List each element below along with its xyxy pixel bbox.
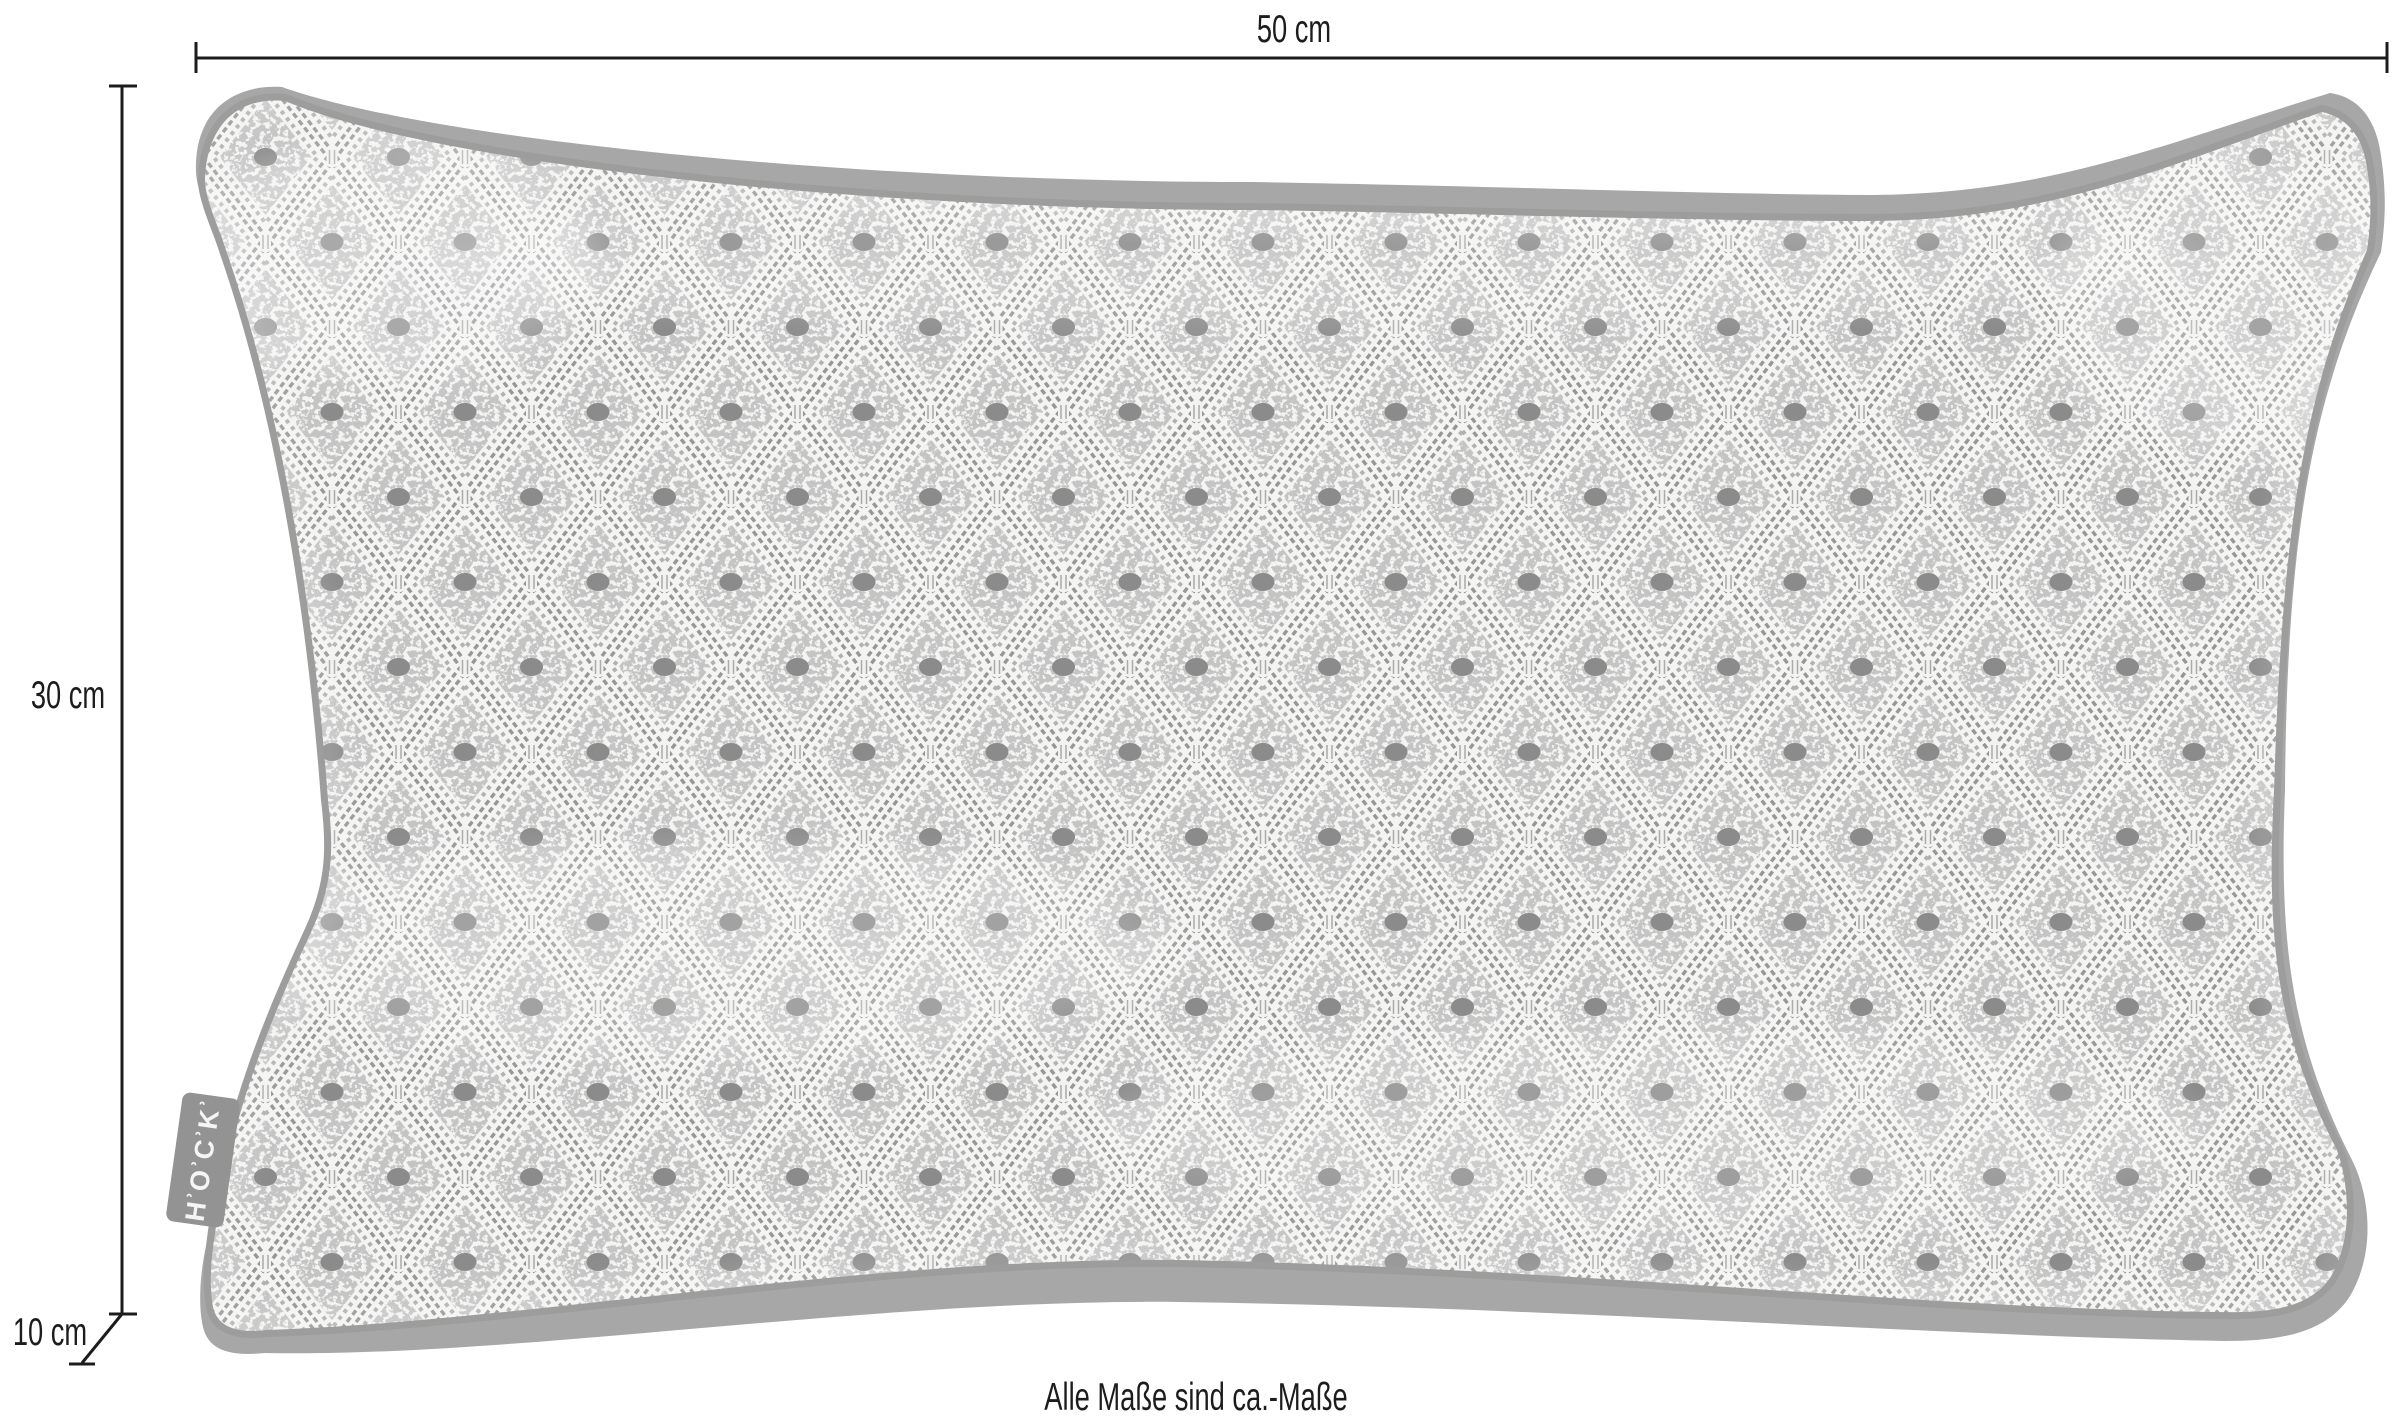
svg-text:50 cm: 50 cm — [1257, 8, 1331, 51]
svg-text:30 cm: 30 cm — [31, 674, 105, 717]
svg-text:10 cm: 10 cm — [13, 1311, 87, 1354]
svg-text:Alle Maße sind ca.-Maße: Alle Maße sind ca.-Maße — [1044, 1376, 1347, 1419]
